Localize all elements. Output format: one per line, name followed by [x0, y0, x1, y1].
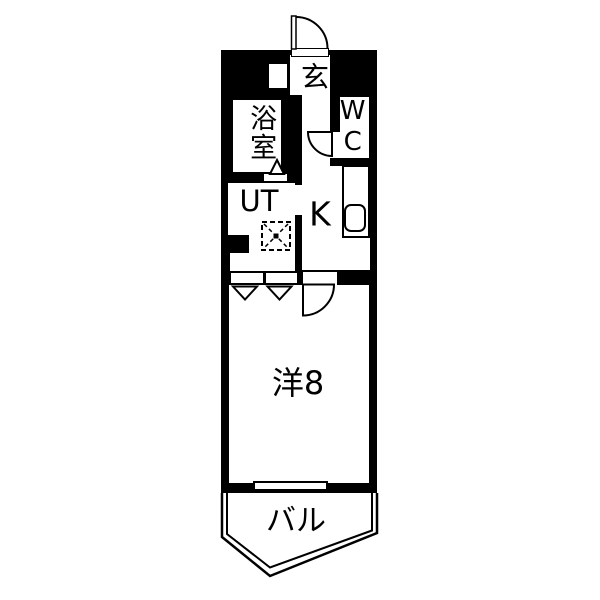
- room-label-bathroom: 浴室: [246, 104, 274, 162]
- washer-alcove-floor: [249, 235, 295, 253]
- floorplan: 玄 浴室 WC UT K 洋8 バル: [0, 0, 600, 600]
- western-room-doorway: [303, 272, 337, 285]
- bathroom-threshold: [262, 172, 289, 183]
- entrance-door-arc: [292, 16, 328, 49]
- closet-panel-left: [229, 271, 265, 285]
- closet-panel-right: [264, 271, 299, 285]
- room-label-utility: UT: [240, 186, 279, 216]
- closet-front-strip: [230, 253, 295, 271]
- room-label-genkan: 玄: [301, 62, 329, 91]
- kitchen-counter: [342, 165, 370, 238]
- room-label-kitchen: K: [309, 198, 331, 233]
- ut-kitchen-doorway: [294, 185, 302, 215]
- window: [253, 481, 328, 491]
- room-label-western: 洋8: [272, 367, 324, 401]
- entrance-doorway-threshold: [291, 48, 329, 57]
- room-label-balcony: バル: [266, 505, 326, 537]
- hallway-floor: [302, 95, 330, 166]
- shoe-cabinet: [267, 62, 289, 90]
- room-label-wc: WC: [338, 96, 365, 158]
